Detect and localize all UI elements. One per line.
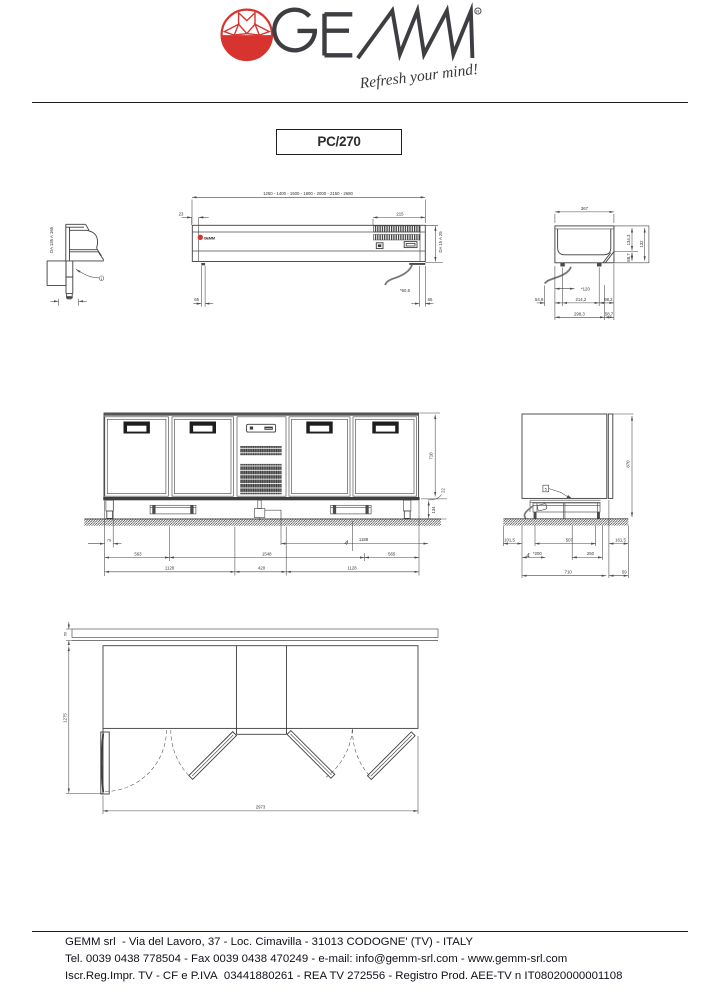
svg-text:DA 15 A 25: DA 15 A 25: [438, 231, 443, 253]
svg-text:DA 135 A 165: DA 135 A 165: [49, 226, 54, 253]
svg-text:367: 367: [581, 206, 589, 211]
svg-text:134,3: 134,3: [626, 234, 631, 245]
svg-text:4: 4: [344, 540, 348, 547]
svg-text:101,5: 101,5: [504, 537, 515, 542]
svg-text:870: 870: [626, 460, 631, 468]
svg-text:54,8: 54,8: [535, 297, 544, 302]
svg-text:5: 5: [545, 487, 548, 492]
svg-text:420: 420: [258, 566, 266, 571]
svg-text:65: 65: [67, 296, 72, 301]
svg-text:134: 134: [431, 506, 436, 514]
svg-text:250: 250: [587, 551, 595, 556]
svg-text:1128: 1128: [347, 566, 357, 571]
svg-text:59: 59: [622, 570, 627, 575]
svg-text:132: 132: [639, 240, 644, 248]
svg-text:88,7: 88,7: [626, 253, 631, 262]
svg-text:*60,6: *60,6: [400, 288, 411, 293]
svg-text:215: 215: [396, 211, 404, 216]
svg-text:*120: *120: [581, 286, 590, 291]
svg-text:65: 65: [428, 297, 433, 302]
svg-text:GEMM: GEMM: [204, 235, 216, 240]
svg-text:23: 23: [179, 211, 184, 216]
svg-text:507: 507: [566, 537, 574, 542]
svg-text:4: 4: [526, 554, 530, 560]
svg-text:79: 79: [107, 538, 111, 543]
svg-text:563: 563: [134, 551, 142, 556]
svg-text:1250 - 1400 - 1600 - 1800 - 20: 1250 - 1400 - 1600 - 1800 - 2000 - 2150 …: [263, 191, 353, 196]
svg-text:1188: 1188: [359, 537, 369, 542]
svg-text:565: 565: [388, 551, 396, 556]
svg-text:161,5: 161,5: [615, 537, 626, 542]
svg-text:98,2: 98,2: [604, 297, 613, 302]
svg-text:1275: 1275: [63, 713, 68, 723]
svg-text:58,7: 58,7: [605, 312, 614, 317]
svg-text:2973: 2973: [256, 805, 266, 810]
svg-text:710: 710: [429, 452, 434, 460]
svg-text:65: 65: [194, 297, 199, 302]
svg-text:214,2: 214,2: [576, 297, 587, 302]
svg-text:710: 710: [565, 570, 573, 575]
svg-text:1: 1: [101, 277, 103, 281]
svg-text:50: 50: [62, 631, 67, 636]
svg-text:1548: 1548: [262, 551, 272, 556]
svg-text:298,3: 298,3: [574, 312, 585, 317]
svg-text:*200: *200: [533, 551, 542, 556]
svg-text:22: 22: [441, 488, 446, 493]
svg-text:1128: 1128: [165, 566, 175, 571]
svg-text:Refresh your mind!: Refresh your mind!: [358, 61, 479, 93]
